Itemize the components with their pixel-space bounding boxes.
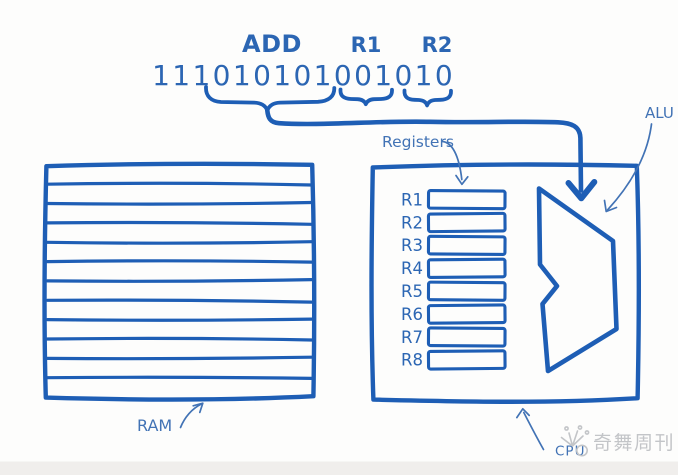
binary-digit: 0 <box>394 59 412 92</box>
ram-row-line <box>48 203 312 205</box>
register-row-label: R4 <box>401 259 423 278</box>
ram-row-line <box>48 280 312 282</box>
binary-digit: 0 <box>435 59 453 92</box>
diagram-canvas: ADD R1 R2 111010101001010 RAM R1R2R3R4R5… <box>0 0 678 475</box>
binary-digit: 0 <box>253 59 271 92</box>
binary-digits: 111010101001010 <box>152 59 453 92</box>
register-row-label: R8 <box>401 351 423 370</box>
register-row-label: R2 <box>401 213 423 232</box>
ram-row-line <box>48 223 312 225</box>
register-row-label: R3 <box>401 236 423 255</box>
binary-digit: 1 <box>152 59 170 92</box>
binary-digit: 0 <box>213 59 231 92</box>
binary-digit: 0 <box>354 59 372 92</box>
ram-row-line <box>48 261 312 262</box>
ram-row-line <box>48 183 312 185</box>
watermark-text: 奇舞周刊 <box>593 432 675 454</box>
ram-row-line <box>48 357 312 358</box>
binary-digit: 1 <box>374 59 392 92</box>
bottom-band <box>0 462 678 475</box>
ram-row-line <box>48 338 312 340</box>
binary-digit: 0 <box>334 59 352 92</box>
register-row-label: R7 <box>401 328 423 347</box>
alu-label: ALU <box>645 104 674 122</box>
operand1-label: R1 <box>351 33 382 57</box>
binary-digit: 1 <box>314 59 332 92</box>
instruction-mnemonic-label: ADD <box>242 30 302 58</box>
cpu-ram-diagram: ADD R1 R2 111010101001010 RAM R1R2R3R4R5… <box>0 0 678 475</box>
ram-row-line <box>48 377 312 378</box>
register-row-label: R6 <box>401 305 423 324</box>
ram-row-line <box>48 319 312 320</box>
binary-digit: 1 <box>172 59 190 92</box>
binary-digit: 1 <box>415 59 433 92</box>
binary-digit: 0 <box>293 59 311 92</box>
ram-row-line <box>48 242 312 243</box>
register-row-label: R5 <box>401 282 423 301</box>
operand2-label: R2 <box>422 33 453 57</box>
register-row-label: R1 <box>401 190 423 209</box>
binary-digit: 1 <box>273 59 291 92</box>
ram-label: RAM <box>137 416 172 435</box>
binary-digit: 1 <box>233 59 251 92</box>
